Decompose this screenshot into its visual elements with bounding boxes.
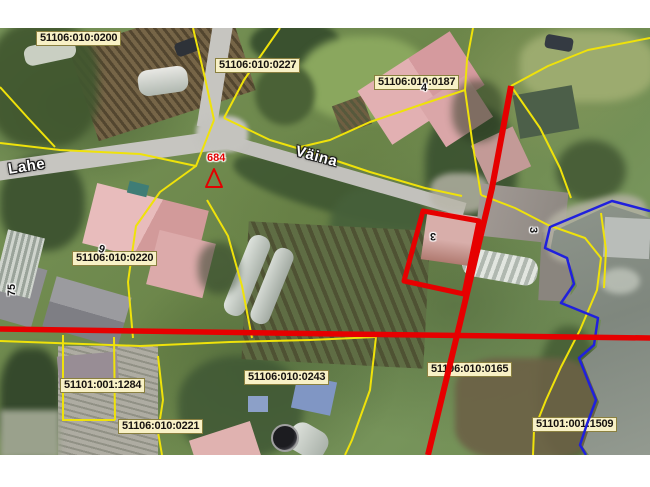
house-number-label: 4 xyxy=(421,82,427,94)
house-number-label: 3 xyxy=(430,230,436,242)
street-name-label: Väina xyxy=(294,143,340,171)
street-name-label: Lahe xyxy=(7,155,47,178)
house-number-label: 3 xyxy=(527,227,539,233)
house-number-label: 684 xyxy=(207,152,225,164)
house-number-label: 75 xyxy=(6,284,18,296)
map-application-window: 51106:010:020051106:010:022751106:010:01… xyxy=(0,0,650,487)
map-viewport[interactable]: 51106:010:020051106:010:022751106:010:01… xyxy=(0,28,650,455)
house-number-label: 6 xyxy=(97,241,107,254)
street-labels-layer: LaheVäina468433675 xyxy=(0,28,650,455)
